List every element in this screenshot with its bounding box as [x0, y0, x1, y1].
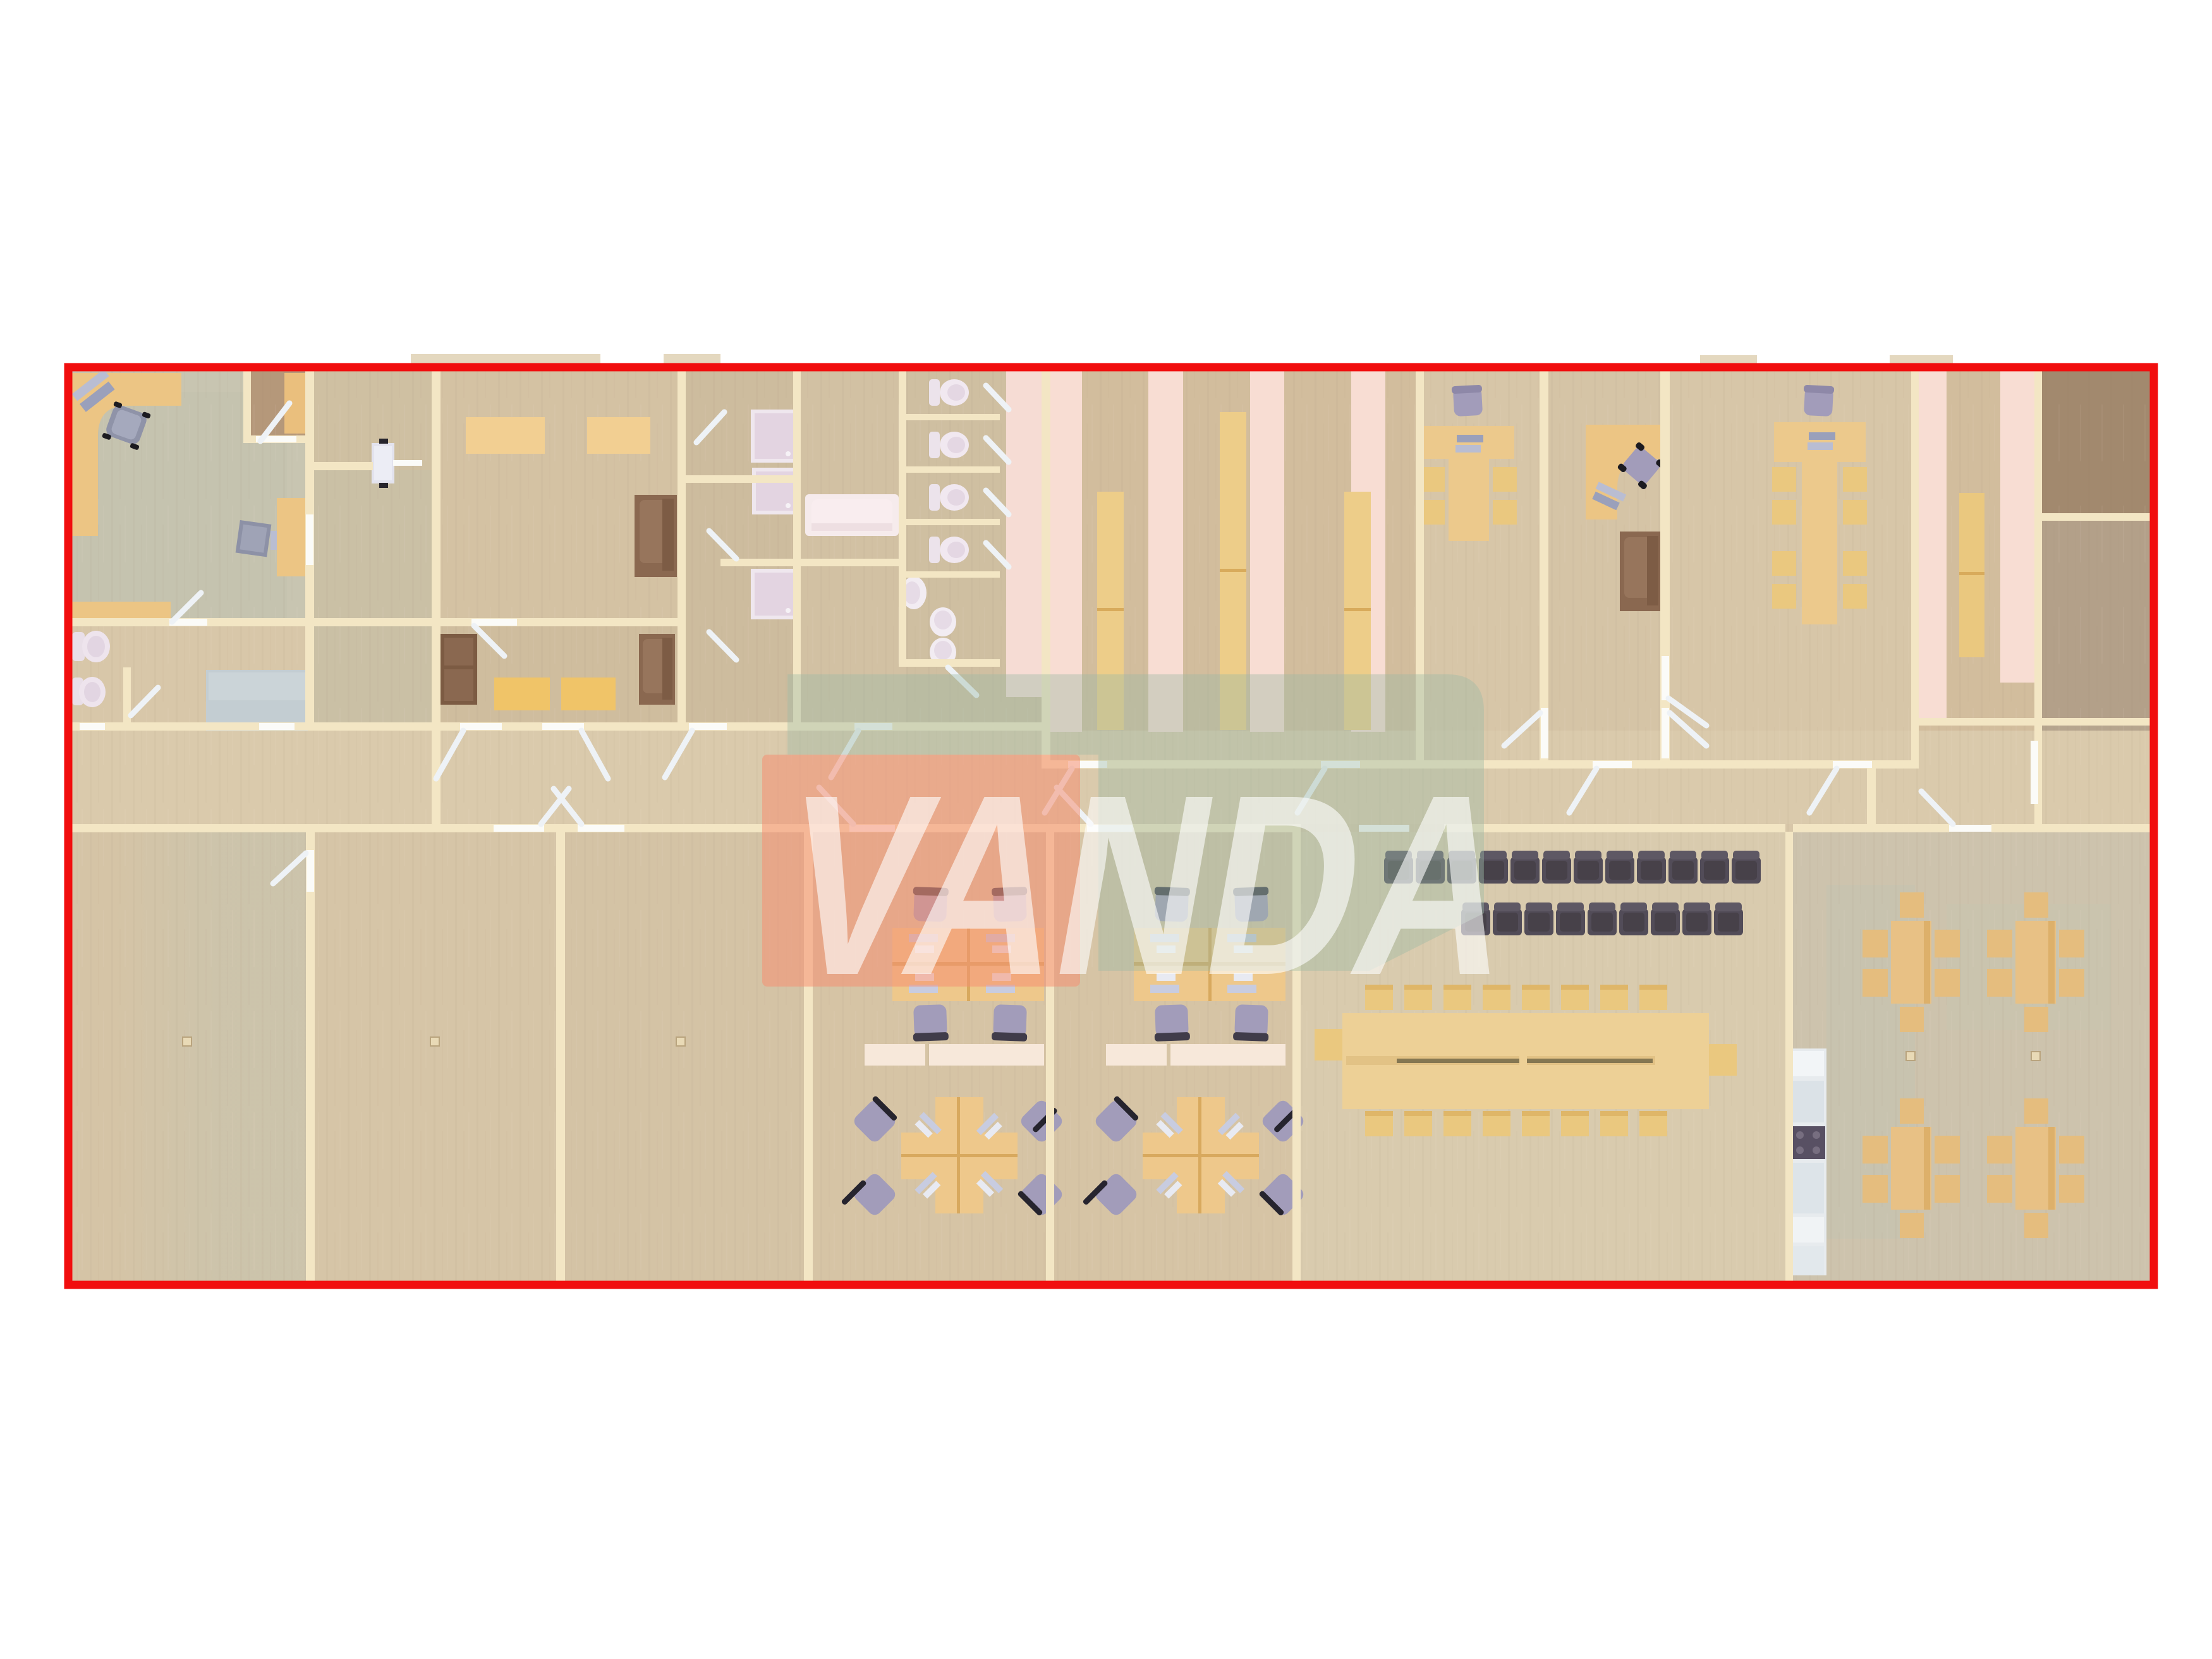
svg-text:VANDA: VANDA [763, 741, 1536, 1028]
